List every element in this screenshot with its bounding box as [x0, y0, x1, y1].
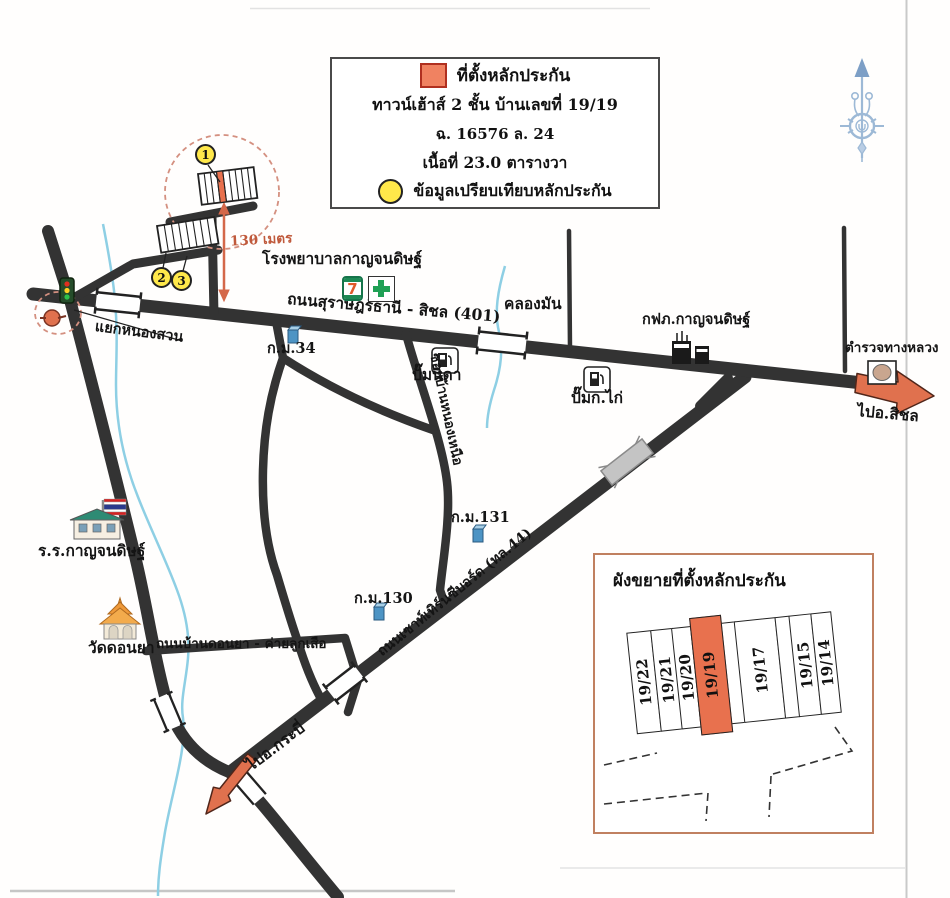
klong-man-label: คลองมัน [504, 295, 562, 312]
bridge-icon [95, 288, 141, 318]
legend-collateral-label: ที่ตั้งหลักประกัน [457, 62, 570, 89]
pea-label: กฟภ.กาญจนดิษฐ์ [642, 312, 750, 328]
badge-1: 1 [195, 144, 216, 165]
km130-label: ก.ม.130 [354, 591, 413, 607]
badge-3: 3 [171, 270, 192, 291]
townhouse-row-subject [198, 167, 257, 205]
legend-building-line: ทาวน์เฮ้าส์ 2 ชั้น บ้านเลขที่ 19/19 [372, 93, 618, 118]
legend-box: ที่ตั้งหลักประกัน ทาวน์เฮ้าส์ 2 ชั้น บ้า… [330, 57, 660, 209]
school-label: ร.ร.กาญจนดิษฐ์ [38, 542, 145, 559]
badge-2: 2 [151, 267, 172, 288]
collateral-square-icon [420, 63, 447, 88]
donya-road-label: ถนนบ้านดอนยา - ค่ายลูกเสือ [156, 637, 327, 652]
inset-plan-box: ผังขยายที่ตั้งหลักประกัน 19/22 19/21 19/… [593, 553, 874, 834]
temple-icon [100, 598, 140, 639]
seven-stripe [344, 295, 361, 299]
roundabout-icon [40, 310, 66, 326]
km131-label: ก.ม.131 [451, 510, 510, 526]
map-canvas: โรงพยาบาลกาญจนดิษฐ์ ถนนสุราษฎร์ธานี - สิ… [0, 0, 950, 898]
highway-police-label: ตำรวจทางหลวง [845, 341, 939, 356]
wat-donya-label: วัดดอนยา [88, 639, 155, 656]
legend-area-line: เนื้อที่ 23.0 ตารางวา [423, 150, 568, 175]
pump-kokai-label: ปั๊มก.ไก่ [571, 389, 623, 406]
road-cluster-b [70, 250, 218, 300]
school-icon [70, 499, 126, 539]
road-connector [283, 358, 433, 430]
pea-building-icon [672, 331, 709, 364]
traffic-light-icon [60, 278, 74, 303]
km34-label: ก.ม.34 [267, 341, 316, 357]
compass-icon [840, 58, 884, 162]
seven-eleven-icon: 7 [342, 276, 363, 301]
road-minor-stub [569, 231, 570, 349]
hospital-cross-icon [368, 276, 395, 302]
legend-comparison-label: ข้อมูลเปรียบเทียบหลักประกัน [413, 179, 611, 204]
inset-dashed-lines [595, 555, 872, 832]
legend-deed-line: ฉ. 16576 ล. 24 [436, 122, 555, 146]
hospital-label: โรงพยาบาลกาญจนดิษฐ์ [262, 250, 422, 267]
comparison-circle-icon [378, 179, 403, 204]
distance-130m-label: 130 เมตร [230, 231, 293, 249]
police-icon [868, 361, 896, 384]
